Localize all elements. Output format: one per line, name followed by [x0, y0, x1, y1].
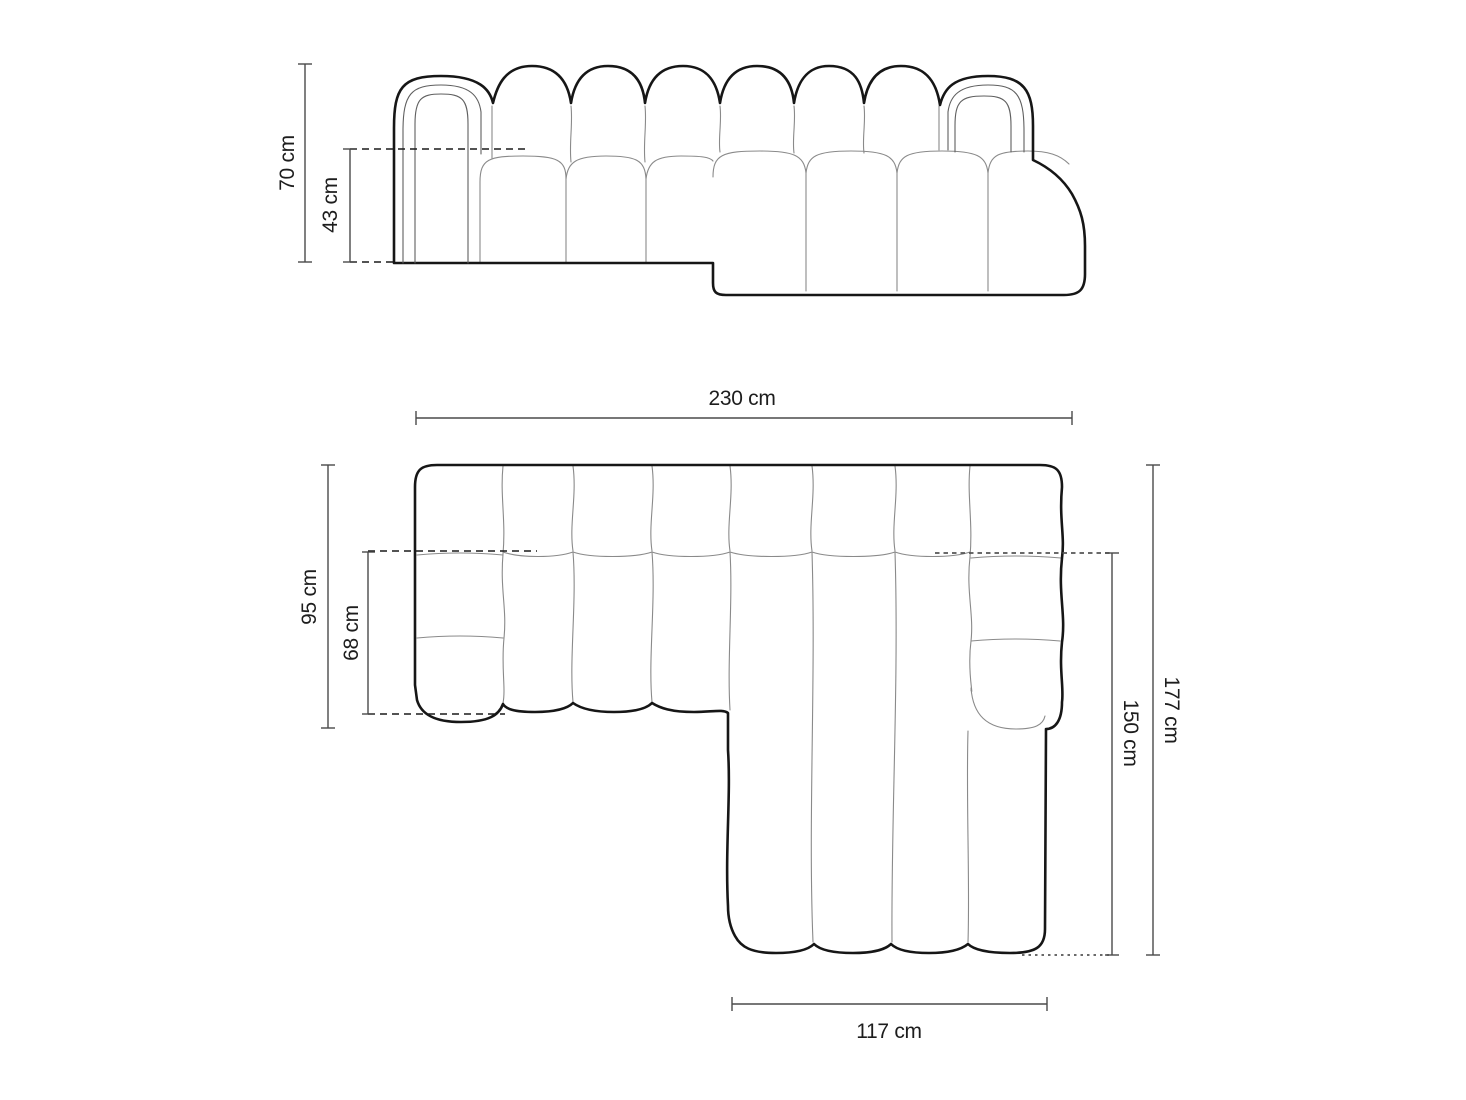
- front-total-height-label: 70 cm: [276, 135, 299, 191]
- plan-total-width-dimension: 230 cm: [416, 387, 1072, 425]
- top-plan-view: 230 cm 95 cm 68 cm 177 cm 15: [298, 387, 1183, 1043]
- plan-seat-depth-label: 68 cm: [340, 605, 363, 661]
- plan-chaise-width-label: 117 cm: [856, 1020, 922, 1043]
- plan-sofa-outline: [415, 465, 1063, 953]
- plan-total-depth-dimension: 177 cm: [1146, 465, 1183, 955]
- plan-total-depth-label: 177 cm: [1160, 676, 1183, 743]
- plan-seat-depth-dimension: 68 cm: [340, 552, 375, 714]
- front-right-armrest-detail: [948, 85, 1024, 152]
- sofa-dimension-diagram: 70 cm 43 cm: [0, 0, 1466, 1100]
- plan-total-width-label: 230 cm: [708, 387, 775, 410]
- plan-interior-lines: [417, 466, 1061, 942]
- front-seat-height-dimension: 43 cm: [319, 149, 357, 262]
- plan-chaise-width-dimension: 117 cm: [732, 997, 1047, 1043]
- front-total-height-dimension: 70 cm: [276, 64, 312, 262]
- front-seat-height-label: 43 cm: [319, 177, 342, 233]
- diagram-canvas: 70 cm 43 cm: [0, 0, 1466, 1100]
- front-chaise-cushions: [713, 151, 1069, 291]
- plan-chaise-depth-dimension: 150 cm: [1105, 553, 1142, 955]
- plan-body-depth-dimension: 95 cm: [298, 465, 335, 728]
- front-seat-cushions: [480, 156, 713, 262]
- plan-body-depth-label: 95 cm: [298, 569, 321, 625]
- front-back-channel-lines: [492, 106, 939, 162]
- front-sofa-outline: [394, 66, 1085, 295]
- plan-chaise-depth-label: 150 cm: [1119, 699, 1142, 766]
- front-left-armrest-detail: [403, 85, 481, 263]
- front-elevation-view: 70 cm 43 cm: [276, 64, 1085, 295]
